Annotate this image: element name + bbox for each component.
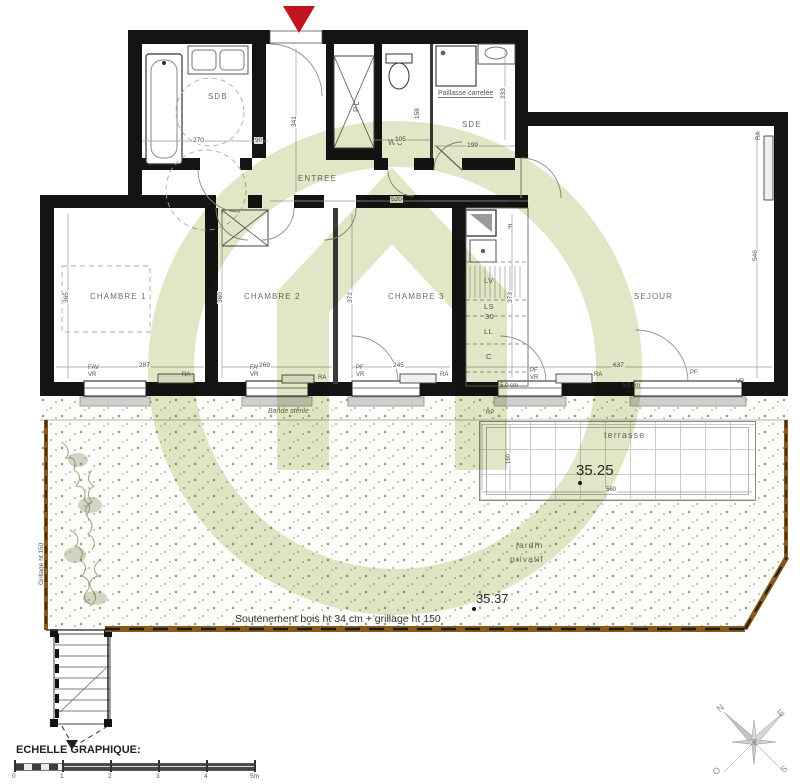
dim-ch2-w: 269 (258, 362, 271, 369)
scale-segment (110, 763, 160, 771)
room-label-pl: PL (352, 100, 361, 112)
dim-sde-h: 233 (500, 87, 507, 100)
scale-number: 2 (108, 773, 112, 780)
fav-label: FAV (88, 365, 99, 371)
dim-ch3-h: 372 (347, 291, 354, 304)
window-label-cuisine: PFVR (530, 368, 538, 381)
vr-label: VR (530, 375, 538, 381)
radiator-label-ch2: RA (318, 375, 326, 382)
scale-number: 1 (60, 773, 64, 780)
kitchen-label-lv: LV (484, 276, 494, 285)
kitchen-label-fridge: F (508, 222, 513, 231)
scale-segment (62, 763, 112, 771)
room-label-terrasse: terrasse (604, 430, 645, 440)
room-label-chambre2: CHAMBRE 2 (244, 292, 301, 301)
scale-tick (254, 760, 256, 772)
scale-title: ECHELLE GRAPHIQUE: (16, 744, 141, 756)
note-paillasse: Paillasse carrelée (438, 90, 493, 98)
dim-ch1-h: 365 (63, 291, 70, 304)
scale-tick (206, 760, 208, 772)
room-label-sde: SDE (462, 120, 482, 129)
window-label-ch3: PFVR (356, 365, 364, 378)
room-label-sejour: SEJOUR (634, 292, 673, 301)
floorplan-page: N E S O SDB WC SDE ENTREE PL CHAMBRE 1 C… (0, 0, 800, 784)
floor-plan-linework (0, 0, 800, 784)
dim-sejour-w: 637 (612, 362, 625, 369)
dim-entree-h: 341 (291, 115, 298, 128)
level-jardin: 35.37 (476, 591, 509, 606)
dim-terrasse-w: 560 (605, 487, 617, 494)
scale-number: 0 (12, 773, 16, 780)
kitchen-label-ll: LL (484, 327, 493, 336)
note-grillage-left: Grillage ht 150 (38, 543, 45, 585)
scale-tick (158, 760, 160, 772)
note-seuil-1: 5.0 cm (500, 383, 518, 390)
dim-terrasse-h: 160 (506, 453, 513, 465)
scale-segment (14, 763, 64, 771)
garden-label-line1: jardin (516, 540, 543, 550)
dim-sde-w: 199 (466, 142, 479, 149)
scale-tick (14, 760, 16, 772)
dim-ch2-h: 360 (217, 291, 224, 304)
dim-sejour-h: 546 (752, 249, 759, 262)
note-soutenement: Soutenement bois ht 34 cm + grillage ht … (235, 613, 441, 625)
note-bande-sterile: Bande stérile (268, 408, 309, 415)
window-label-sejour-vr: VR (736, 379, 744, 386)
scale-segment (158, 763, 208, 771)
level-jardin-dot (472, 607, 476, 611)
radiator-label-sejour: RA (594, 372, 602, 379)
window-label-ch1: FAVVR (88, 365, 99, 378)
radiator-label-ch3: RA (440, 372, 448, 379)
dim-sdb-w: 270 (192, 137, 205, 144)
dim-entree-w: 520 (390, 196, 403, 203)
pf-label: PF (356, 365, 364, 371)
radiator-label-ch1: RA (182, 372, 190, 379)
radiator-label-top-right: RA (756, 132, 763, 140)
garden-label-line2: privatif (510, 554, 544, 564)
level-terrasse-dot (578, 481, 582, 485)
vr-label: VR (356, 372, 364, 378)
dim-ch3-w: 245 (392, 362, 405, 369)
level-terrasse: 35.25 (576, 462, 614, 479)
note-seuil-2: 5.0 cm (622, 383, 640, 390)
note-rp: RP (486, 410, 494, 416)
room-label-entree: ENTREE (298, 174, 337, 183)
vr-label: VR (250, 372, 258, 378)
dim-sdb-w2: 90 (254, 137, 263, 144)
dim-cuisine-h: 373 (507, 291, 514, 304)
vr-label: VR (88, 372, 96, 378)
dim-wc-w: 105 (394, 136, 407, 143)
scale-segment (206, 763, 256, 771)
scale-number: 5m (250, 773, 259, 780)
room-label-chambre1: CHAMBRE 1 (90, 292, 147, 301)
room-label-sdb: SDB (208, 92, 228, 101)
room-label-chambre3: CHAMBRE 3 (388, 292, 445, 301)
pf-label: PF (530, 368, 538, 374)
dim-ch1-w: 287 (138, 362, 151, 369)
scale-number: 3 (156, 773, 160, 780)
kitchen-label-30: 30 (485, 312, 494, 321)
scale-tick (110, 760, 112, 772)
entrance-marker-icon (283, 6, 315, 33)
scale-number: 4 (204, 773, 208, 780)
dim-wc-h: 158 (414, 107, 421, 120)
kitchen-label-c: C (486, 352, 492, 361)
window-label-sejour-pf: PF (690, 370, 698, 377)
scale-tick (62, 760, 64, 772)
kitchen-label-ls: LS (484, 302, 494, 311)
